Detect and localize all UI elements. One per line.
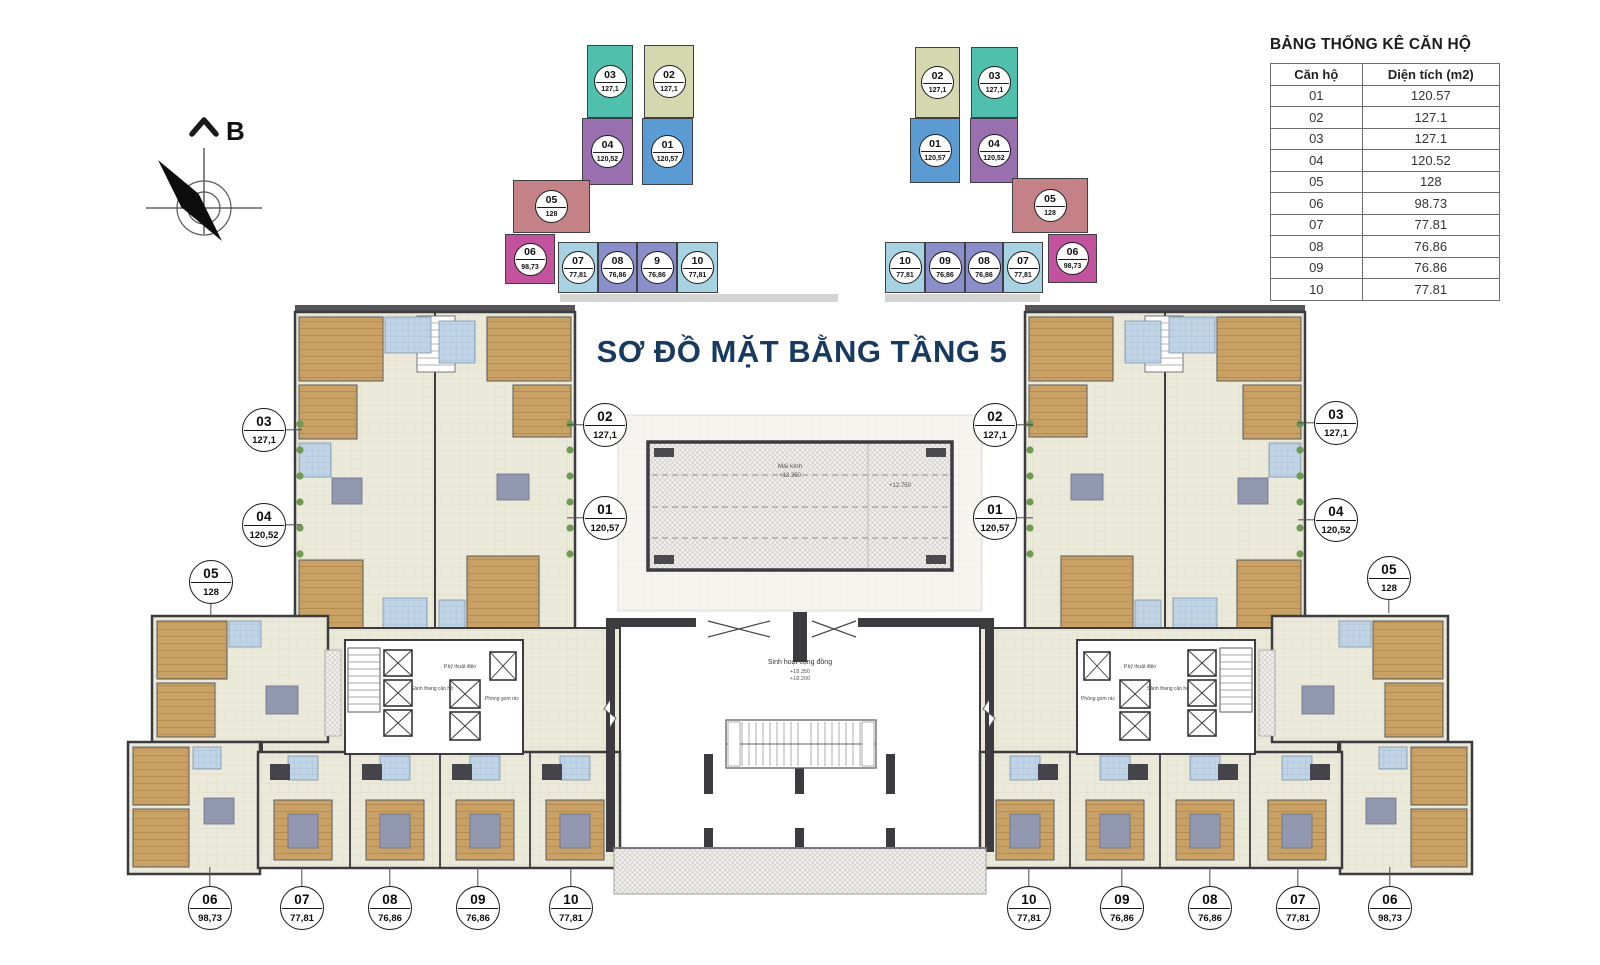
tech-room-label-left: P.kỹ thuật điện: [444, 664, 477, 670]
right-wing: [980, 305, 1472, 874]
stats-col-area: Diện tích (m2): [1362, 64, 1499, 86]
compass-needle: [158, 160, 222, 241]
skylight-level-b: +12.750: [889, 483, 912, 489]
stats-unit-cell: 05: [1271, 171, 1363, 193]
trash-room-label-left: Phòng gom rác: [485, 696, 519, 702]
community-level-a: +18.350: [790, 669, 810, 675]
stats-unit-cell: 09: [1271, 257, 1363, 279]
stats-area-cell: 127.1: [1362, 107, 1499, 129]
stats-unit-cell: 07: [1271, 214, 1363, 236]
central-staircase: [726, 720, 876, 768]
stats-area-cell: 98.73: [1362, 193, 1499, 215]
stats-unit-cell: 10: [1271, 279, 1363, 301]
stats-row: 10 77.81: [1271, 279, 1500, 301]
community-level-b: +18.200: [790, 676, 810, 682]
left-wing: [128, 305, 620, 874]
stats-header-row: Căn hộ Diện tích (m2): [1271, 64, 1500, 86]
skylight-level-a: +13.350: [779, 473, 802, 479]
stats-area-cell: 127.1: [1362, 128, 1499, 150]
stats-table-title: BẢNG THỐNG KÊ CĂN HỘ: [1270, 36, 1500, 54]
stats-row: 04 120.52: [1271, 150, 1500, 172]
stats-unit-cell: 03: [1271, 128, 1363, 150]
stats-row: 05 128: [1271, 171, 1500, 193]
door-symbol: [812, 621, 856, 637]
stats-area-cell: 77.81: [1362, 279, 1499, 301]
page-title: SƠ ĐỒ MẶT BẰNG TẦNG 5: [597, 334, 1008, 370]
trash-room-label-right: Phòng gom rác: [1081, 696, 1115, 702]
stats-area-cell: 128: [1362, 171, 1499, 193]
core-staircase: [348, 648, 380, 712]
stats-col-unit: Căn hộ: [1271, 64, 1363, 86]
skylight-label: Mái kính: [778, 463, 803, 470]
stats-area-cell: 76.86: [1362, 236, 1499, 258]
community-hall: Sinh hoạt cộng đồng +18.350 +18.200: [604, 612, 995, 870]
compass: B: [138, 98, 270, 250]
tech-room-label-right: P.kỹ thuật điện: [1124, 664, 1157, 670]
stats-row: 09 76.86: [1271, 257, 1500, 279]
stats-area-cell: 120.52: [1362, 150, 1499, 172]
skylight-roof: Mái kính +13.350 +12.750: [648, 442, 952, 570]
stats-unit-cell: 02: [1271, 107, 1363, 129]
stats-area-cell: 76.86: [1362, 257, 1499, 279]
stats-row: 07 77.81: [1271, 214, 1500, 236]
stats-unit-cell: 04: [1271, 150, 1363, 172]
stats-row: 01 120.57: [1271, 85, 1500, 107]
stats-row: 02 127.1: [1271, 107, 1500, 129]
north-arrow-icon: [192, 120, 216, 134]
stats-area-cell: 77.81: [1362, 214, 1499, 236]
stats-unit-cell: 01: [1271, 85, 1363, 107]
compass-north-label: B: [226, 116, 245, 146]
door-symbol: [708, 621, 770, 637]
community-label: Sinh hoạt cộng đồng: [768, 657, 832, 666]
stats-area-cell: 120.57: [1362, 85, 1499, 107]
stats-row: 03 127.1: [1271, 128, 1500, 150]
apartment-stats: BẢNG THỐNG KÊ CĂN HỘ Căn hộ Diện tích (m…: [1270, 36, 1500, 301]
walkway: [614, 848, 986, 894]
stats-row: 08 76.86: [1271, 236, 1500, 258]
stats-row: 06 98.73: [1271, 193, 1500, 215]
lobby-label-left: Sảnh thang căn hộ: [411, 686, 453, 692]
floor-plan-page: Mái kính +13.350 +12.750: [0, 0, 1600, 965]
lobby-label-right: Sảnh thang căn hộ: [1147, 686, 1189, 692]
stats-unit-cell: 08: [1271, 236, 1363, 258]
stats-unit-cell: 06: [1271, 193, 1363, 215]
stats-table: Căn hộ Diện tích (m2) 01 120.57 02 127.1: [1270, 63, 1500, 301]
